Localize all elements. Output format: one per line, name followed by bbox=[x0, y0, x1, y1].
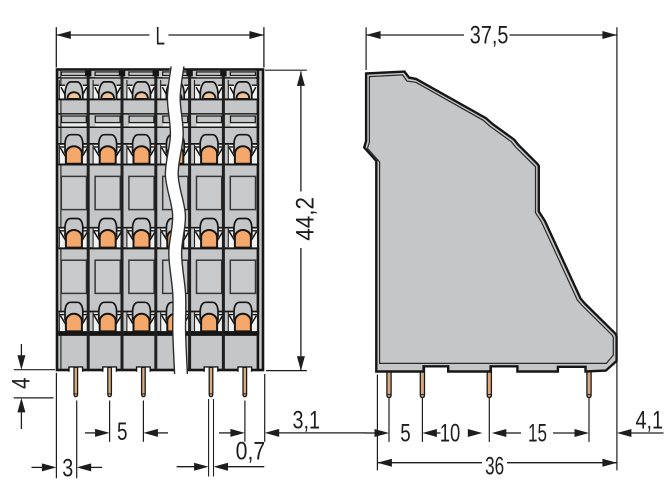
svg-text:3,1: 3,1 bbox=[293, 407, 321, 435]
svg-text:44,2: 44,2 bbox=[291, 197, 319, 241]
svg-text:4,1: 4,1 bbox=[636, 407, 664, 435]
svg-text:0,7: 0,7 bbox=[236, 438, 266, 466]
svg-text:36: 36 bbox=[485, 453, 504, 481]
svg-text:15: 15 bbox=[528, 419, 547, 447]
svg-text:5: 5 bbox=[400, 419, 411, 447]
svg-text:10: 10 bbox=[440, 419, 461, 447]
svg-text:37,5: 37,5 bbox=[470, 22, 509, 50]
svg-text:3: 3 bbox=[62, 455, 73, 483]
svg-text:L: L bbox=[155, 22, 165, 50]
svg-text:4: 4 bbox=[8, 377, 36, 389]
svg-text:5: 5 bbox=[117, 418, 128, 446]
